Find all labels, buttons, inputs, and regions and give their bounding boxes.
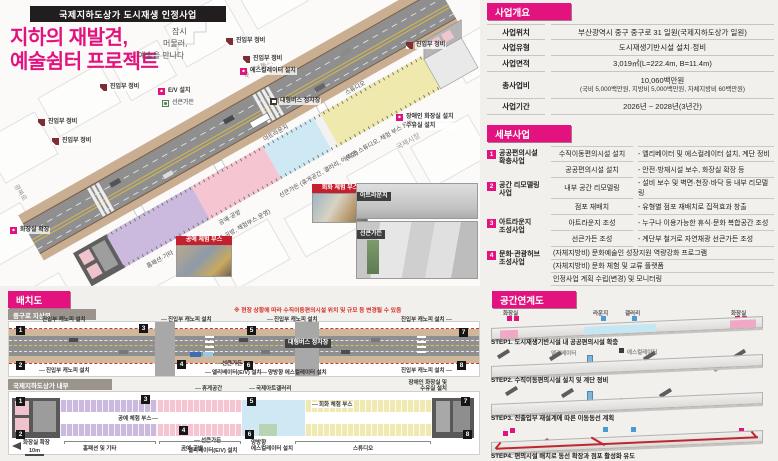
sidewalk [9, 329, 479, 336]
step1-caption: STEP1. 도시재생기반시설 내 공공편의시설 확충 [491, 337, 618, 346]
homefashion-label: 홈패션 및 기타 [83, 446, 116, 452]
step4-caption: STEP4. 편의시설 배치로 동선 확장과 점포 활성화 유도 [491, 451, 635, 460]
group-number: 4 [487, 251, 496, 260]
sunken-garden-mark [203, 352, 213, 357]
toilet-icon [514, 316, 519, 321]
marker-8: 8 [463, 430, 472, 439]
callout-bus-stop: 대형버스 정차장 [270, 98, 321, 105]
toilet-icon [10, 227, 17, 234]
callout-toilet-expand: 화장실 확장 [10, 227, 50, 234]
detail-table: 1 공공편의시설확충사업 수직이동편의시설 설치- 엘리베이터 및 에스컬레이터… [487, 146, 774, 286]
total-cost: 10,060백만원 [641, 76, 685, 85]
stair-ramp [497, 349, 510, 359]
group-number: 1 [487, 150, 496, 159]
canopy-label: 진입부 캐노피 설치 [35, 317, 86, 323]
scale-bar: 10m [25, 448, 44, 456]
marker-5: 5 [247, 326, 256, 335]
cross-street [155, 322, 175, 376]
detail-group-4: 4 문화·관광허브조성사업 (자체지방비) 문화예술인 성장지원 역량강화 프로… [487, 247, 774, 286]
table-row: 사업유형 도시재생기반시설 설치·정비 [487, 40, 774, 56]
marker-2: 2 [16, 361, 25, 370]
tagline-1: 잠시 [172, 26, 187, 37]
callout-entry-3: 진입부 정비 [52, 138, 92, 145]
linkage-step-1: 화장실 라운지 갤러리 화장실 STEP1. 도시재생기반시설 내 공공편의시설… [491, 309, 769, 345]
car [261, 350, 270, 354]
project-info-panel: 사업개요 사업위치 부산광역시 중구 중구로 31 일원(국제지하도상가 일원)… [487, 0, 774, 286]
escalator-label: 양방향에스컬레이터 설치 [251, 440, 293, 452]
sunken-label: 선큰가든 [215, 361, 242, 367]
callout-disabled-toilet: 장애인 화장실 설치 수유실 설치 [396, 114, 455, 130]
photo-label: 공예 체험 부스 [176, 236, 232, 245]
marker-4: 4 [179, 426, 188, 435]
shops-craft-top [157, 400, 242, 412]
toilet-icon [507, 316, 512, 321]
site-plan-panel: 배치도 ※ 현장 상황에 따라 수직이동편의시설 위치 및 규모 등 변경될 수… [2, 288, 484, 459]
car [341, 350, 350, 354]
stairs-entry-icon [243, 56, 250, 63]
ground-level-plan: 대형버스 정차장 1 2 3 4 5 6 7 8 진입부 캐노피 설치 진입부 … [8, 321, 480, 377]
lane-line [9, 351, 479, 352]
toilet-cell [436, 401, 450, 432]
stairs-entry-icon [406, 42, 413, 49]
bus-icon [270, 98, 277, 105]
elevator-label: 엘리베이터(E/V) 설치 [181, 448, 237, 454]
kicker-bar: 국제지하도상가 도시재생 인정사업 [30, 6, 226, 22]
center-line [9, 345, 479, 346]
title-line-1: 지하의 재발견, [10, 26, 158, 50]
toilet-cell [33, 401, 56, 432]
overview-header: 사업개요 [487, 3, 571, 20]
isometric-overview-panel: 홈패션·기타 공예·공방 (공예·공방, 체험부스 운영) 선큰가든 (휴게공간… [0, 0, 480, 286]
shops-homefashion-bottom [60, 424, 157, 436]
red-boundary [9, 328, 479, 329]
tagline-2: 머물러, [163, 38, 187, 49]
table-row: 사업위치 부산광역시 중구 중구로 31 일원(국제지하도상가 일원) [487, 24, 774, 40]
rendering-sunken-garden: 선큰가든 [356, 221, 478, 279]
plan2-subtitle: 국제지하도상가 내부 [8, 379, 112, 390]
detail-item: 선큰가든 조성- 계단부 철거로 자연채광 선큰가든 조성 [551, 231, 774, 247]
stair-ramp [505, 386, 518, 396]
escalator-icon [619, 348, 624, 353]
linkage-header: 공간연계도 [492, 291, 576, 308]
car [371, 338, 380, 342]
detail-line: (자체지방비) 문화 체험 및 교류 플랫폼 [551, 260, 774, 273]
marker-1: 1 [16, 326, 25, 335]
callout-sunken-garden: 선큰가든 [162, 100, 195, 107]
detail-group-2: 2 공간 리모델링사업 내부 공간 리모델링- 설비 보수 및 벽면·천장·바닥… [487, 178, 774, 215]
step3-caption: STEP3. 진출입부 재설계에 따른 이동동선 계획 [491, 413, 614, 422]
detail-header: 세부사업 [487, 125, 571, 142]
stairs-entry-icon [100, 84, 107, 91]
rendering-label: 선큰가든 [357, 230, 385, 239]
table-row: 사업기간 2026년 ~ 2028년(3년간) [487, 99, 774, 115]
toilet-zone [730, 319, 756, 328]
detail-line: 인정사업 계획 수립(변경) 및 모니터링 [551, 273, 774, 286]
gallery-icon [631, 427, 636, 432]
project-poster: 홈패션·기타 공예·공방 (공예·공방, 체험부스 운영) 선큰가든 (휴게공간… [0, 0, 778, 461]
tagline-3: 예술을 만나다 [138, 50, 184, 61]
toilet-expand-label: 화장실 확장 [23, 440, 50, 446]
marker-5: 5 [247, 397, 256, 406]
underground-plan: 1 2 3 4 5 6 7 8 화장실 확장 홈패션 및 기타 공예·공방 공예… [8, 391, 480, 455]
stairs-entry-icon [52, 138, 59, 145]
elevator-mark [190, 352, 201, 357]
elevator-icon [158, 88, 165, 95]
rest-area-label: 휴게공간 [195, 386, 222, 392]
linkage-step-3: STEP3. 진출입부 재설계에 따른 이동동선 계획 [491, 385, 769, 421]
detail-item: 아트라운지 조성- 누구나 이용가능한 휴식·문화 복합공간 조성 [551, 215, 774, 231]
detail-item: 수직이동편의시설 설치- 엘리베이터 및 에스컬레이터 설치, 계단 정비 [551, 146, 774, 162]
car [239, 338, 248, 342]
canopy-label: 진입부 캐노피 설치 [401, 317, 452, 323]
detail-group-1: 1 공공편의시설확충사업 수직이동편의시설 설치- 엘리베이터 및 에스컬레이터… [487, 146, 774, 178]
group-number: 3 [487, 219, 496, 228]
group-number: 2 [487, 182, 496, 191]
overview-table: 사업위치 부산광역시 중구 중구로 31 일원(국제지하도상가 일원) 사업유형… [487, 24, 774, 115]
craft-booth-label: 공예 체험 부스 [117, 416, 159, 422]
page-title: 지하의 재발견, 예술쉼터 프로젝트 [10, 26, 158, 74]
table-row: 총사업비 10,060백만원 (국비 5,000백만원, 지방비 5,000백만… [487, 72, 774, 99]
toilet-icon [510, 428, 515, 433]
sunken-garden-block [259, 424, 277, 436]
stairs-entry-icon [38, 119, 45, 126]
title-line-2: 예술쉼터 프로젝트 [10, 50, 158, 74]
studio-label: 스튜디오 [353, 446, 373, 452]
photo-image [176, 245, 232, 277]
callout-entry-1: 진입부 정비 [100, 84, 140, 91]
callout-entry-5: 진입부 정비 [406, 42, 446, 49]
cross-street [295, 322, 319, 376]
rendering-artlounge: 아트라운지 [356, 183, 478, 219]
street-name-gwangbok: 광복로 [12, 183, 28, 202]
car [69, 338, 78, 342]
lounge-icon [601, 316, 606, 321]
accessible-toilet-icon [396, 114, 403, 121]
sunken-label: 선큰가든 [194, 438, 221, 444]
detail-item: 내부 공간 리모델링- 설비 보수 및 벽면·천장·바닥 등 내부 리모델링 [551, 178, 774, 199]
marker-3: 3 [139, 324, 148, 333]
marker-3: 3 [141, 395, 150, 404]
marker-7: 7 [459, 328, 468, 337]
stairs-entry-icon [226, 38, 233, 45]
marker-6: 6 [244, 361, 253, 370]
gallery-label: 국제아트갤러리 [249, 386, 291, 392]
shops-craft-bottom [157, 424, 242, 436]
layout-header: 배치도 [8, 291, 70, 308]
marker-1: 1 [16, 397, 25, 406]
linkage-step-2: 엘리베이터 에스컬레이터 STEP2. 수직이동편의시설 설치 및 계단 정비 [491, 347, 769, 383]
callout-entry-4: 진입부 정비 [226, 38, 266, 45]
detail-item: 점포 재배치- 유형별 점포 재배치로 집적효과 창출 [551, 199, 774, 215]
north-arrow-icon [12, 442, 21, 450]
callout-escalator: 에스컬레이터 설치 [240, 68, 297, 75]
sunken-garden-icon [162, 100, 169, 107]
car [119, 350, 128, 354]
disabled-toilet-label: 장애인 화장실 및수유실 설치 [387, 380, 447, 392]
space-linkage-panel: 공간연계도 화장실 라운지 갤러리 화장실 STEP1. 도시재생기반시설 내 … [487, 289, 776, 459]
callout-entry-2: 진입부 정비 [38, 119, 78, 126]
dim-bracket [64, 441, 156, 444]
elevator-label: 엘리베이터(E/V) 설치 [205, 370, 261, 376]
rendering-label: 아트라운지 [357, 192, 391, 201]
table-row: 사업면적 3,019㎡(L=222.4m, B=11.4m) [487, 56, 774, 72]
canopy-label: 진입부 캐노피 설치 [39, 368, 90, 374]
photo-craft-booth: 공예 체험 부스 [176, 236, 232, 277]
stair-ramp [561, 388, 574, 398]
escalator-label: 양방향 에스컬레이터 설치 [261, 370, 327, 376]
canopy-label: 진입부 캐노피 설치 [267, 317, 318, 323]
marker-7: 7 [461, 397, 470, 406]
detail-line: (자체지방비) 문화예술인 성장지원 역량강화 프로그램 [551, 247, 774, 260]
callout-entry-6: 진입부 정비 [243, 56, 283, 63]
detail-item: 공공편의시설 설치- 안전·방재시설 보수, 화장실 확장 등 [551, 162, 774, 178]
callout-elevator: E/V 설치 [158, 88, 191, 95]
linkage-step-4: STEP4. 편의시설 배치로 동선 확장과 점포 활성화 유도 [491, 423, 769, 459]
cost-breakdown: (국비 5,000백만원, 지방비 5,000백만원, 자체지방비 60백만원) [580, 85, 745, 94]
marker-2: 2 [16, 430, 25, 439]
bus-stop-label: 대형버스 정차장 [285, 339, 331, 348]
dim-bracket [295, 441, 431, 444]
circulation-route [496, 436, 758, 449]
escalator-icon [240, 68, 247, 75]
canopy-label: 진입부 캐노피 설치 [401, 368, 452, 374]
marker-6: 6 [245, 430, 254, 439]
paint-booth-label: 회화 체험 부스 [311, 402, 353, 408]
lounge-icon [603, 427, 608, 432]
studio-bottom [305, 424, 432, 436]
plan-note: ※ 현장 상황에 따라 수직이동편의시설 위치 및 규모 등 변경될 수 있음 [234, 305, 401, 314]
crosswalk [417, 336, 426, 356]
canopy-label: 진입부 캐노피 설치 [161, 317, 212, 323]
lounge-gallery-zone [584, 324, 656, 335]
marker-8: 8 [457, 361, 466, 370]
marker-4: 4 [177, 360, 186, 369]
plant-wall [367, 240, 379, 274]
step2-caption: STEP2. 수직이동편의시설 설치 및 계단 정비 [491, 375, 608, 384]
toilet-icon [503, 431, 508, 436]
gallery-icon [632, 316, 637, 321]
detail-group-3: 3 아트라운지조성사업 아트라운지 조성- 누구나 이용가능한 휴식·문화 복합… [487, 215, 774, 247]
